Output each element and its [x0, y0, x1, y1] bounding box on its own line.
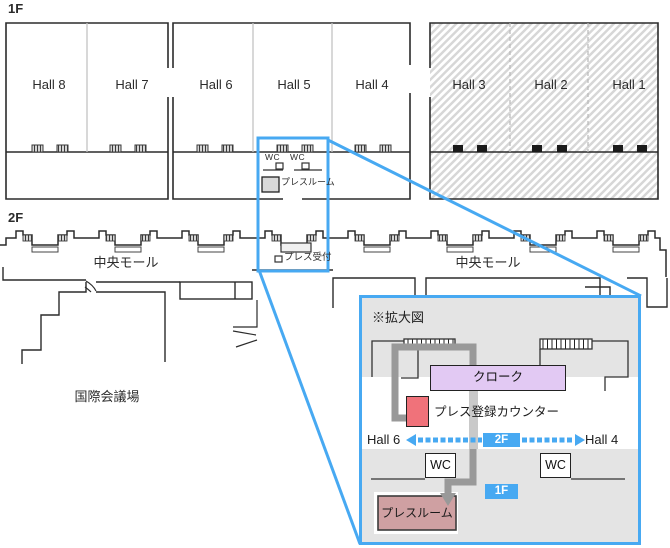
inset-wc-left: WC [425, 453, 456, 478]
cloak-box: クローク [430, 365, 566, 391]
hall-label-5: Hall 5 [277, 78, 310, 92]
central-mall-label-right: 中央モール [455, 256, 520, 270]
hall-label-2: Hall 2 [534, 78, 567, 92]
hall-label-4: Hall 4 [355, 78, 388, 92]
wc-label-1f-right: WC [290, 153, 305, 162]
badge-1f: 1F [485, 484, 518, 499]
floor-map: 1F Hall 8 Hall 7 Hall 6 Hall 5 Hall 4 Ha… [0, 0, 670, 548]
stairs-band-right [540, 339, 592, 349]
hall-label-1: Hall 1 [612, 78, 645, 92]
passage-marks-right [233, 300, 257, 347]
press-reception-label: プレス受付 [284, 253, 332, 263]
rooms-rect [180, 282, 252, 299]
floor1-label: 1F [8, 2, 23, 16]
conference-hall-label: 国際会議場 [74, 390, 139, 404]
central-mall-label-left: 中央モール [93, 256, 158, 270]
badge-2f: 2F [483, 433, 520, 447]
press-counter-label: プレス登録カウンター [434, 401, 559, 420]
hall-label-7: Hall 7 [115, 78, 148, 92]
inset-enlarged-map: ※拡大図 クローク プレス登録カウンター Hall 6 Hall 4 2F 1F… [359, 295, 641, 545]
arrow-right-icon [575, 434, 585, 446]
wc-label-1f-left: WC [265, 153, 280, 162]
floor2-label: 2F [8, 211, 23, 225]
pressroom-box-1f [262, 177, 279, 192]
inset-hall6-label: Hall 6 [367, 432, 400, 447]
wc-square-right [302, 163, 309, 169]
press-counter-box [406, 396, 429, 427]
inset-title: ※拡大図 [372, 307, 424, 326]
conference-hall-outline [22, 282, 165, 364]
hall-block-321-hatched-fill [430, 23, 658, 199]
hall-label-3: Hall 3 [452, 78, 485, 92]
press-reception-desk [281, 243, 311, 252]
press-reception-square [275, 256, 282, 262]
mall-bottom-left [3, 267, 86, 280]
inset-hall4-label: Hall 4 [585, 432, 618, 447]
hall-block-654-fill [173, 23, 410, 199]
inset-wc-right: WC [540, 453, 571, 478]
arrow-left-icon [406, 434, 416, 446]
callout-line-bottom [259, 270, 360, 544]
hall-label-6: Hall 6 [199, 78, 232, 92]
pressroom-label-1f: プレスルーム [281, 178, 335, 188]
inset-pressroom-label: プレスルーム [378, 504, 456, 521]
hall-label-8: Hall 8 [32, 78, 65, 92]
wc-square-left [276, 163, 283, 169]
